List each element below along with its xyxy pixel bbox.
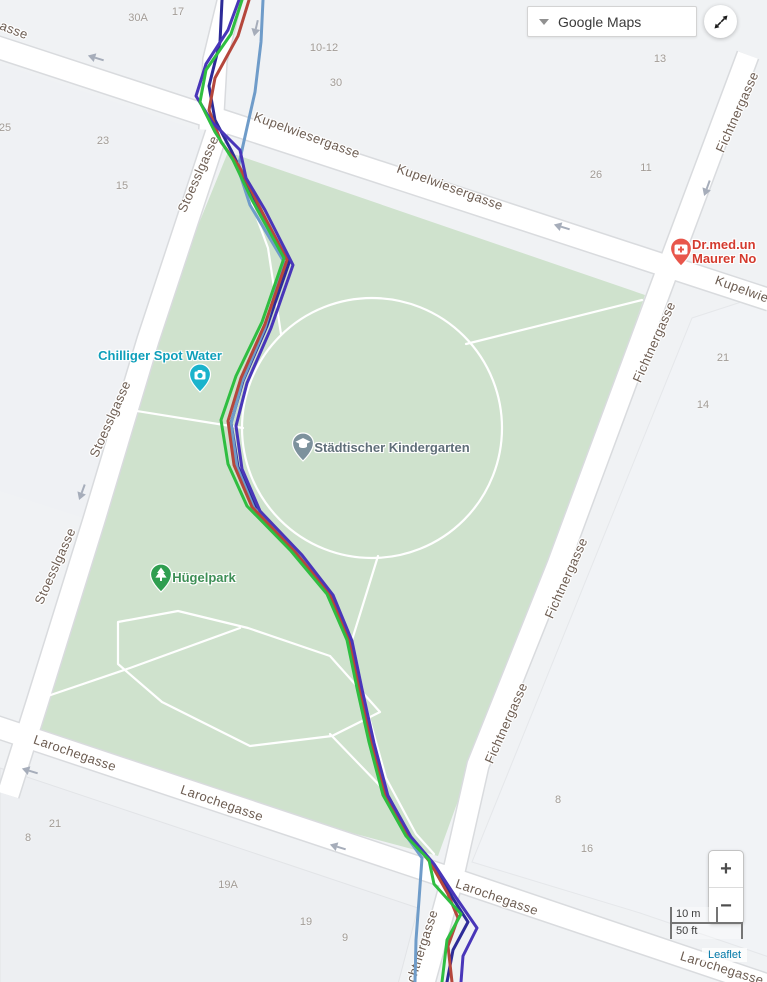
scale-control: 10 m 50 ft: [670, 907, 743, 939]
basemap-selector[interactable]: Google Maps: [527, 6, 697, 37]
one-way-arrow-icon: [87, 51, 105, 64]
scale-imperial: 50 ft: [670, 922, 743, 939]
attribution-bar: Leaflet: [702, 948, 747, 962]
fullscreen-button[interactable]: [704, 5, 737, 38]
one-way-arrow-icon: [250, 19, 262, 37]
leaflet-link[interactable]: Leaflet: [708, 949, 741, 961]
map[interactable]: asseKupelwiesergasseKupelwiesergasseKupe…: [0, 0, 767, 982]
zoom-in-button[interactable]: +: [709, 851, 743, 887]
map-canvas[interactable]: [0, 0, 767, 982]
dropdown-arrow-icon: [539, 19, 549, 25]
expand-arrows-icon: [712, 13, 730, 31]
basemap-selector-label: Google Maps: [558, 14, 641, 30]
